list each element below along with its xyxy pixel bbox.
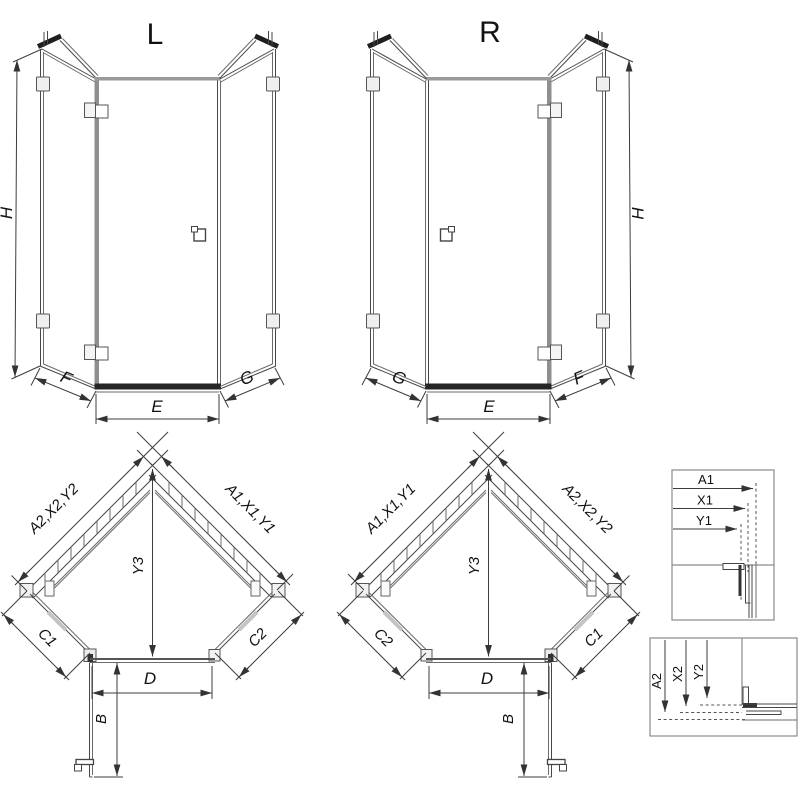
detail-label-y2: Y2 <box>691 664 706 680</box>
detail-label-x1: X1 <box>697 493 713 508</box>
dim-label-wall-left-R: A1,X1,Y1 <box>362 480 420 538</box>
dim-label-f-left: F <box>58 367 76 389</box>
dim-label-wall-left-L: A2,X2,Y2 <box>25 480 83 538</box>
dim-label-e-right: E <box>483 397 495 416</box>
dim-label-y3-R: Y3 <box>466 556 483 575</box>
dim-label-f-right: F <box>570 367 588 389</box>
elevation-view-right: R H G E F <box>362 16 647 424</box>
dim-label-height-right: H <box>628 207 647 220</box>
dim-label-c1-R: C1 <box>581 625 607 651</box>
dim-label-d-L: D <box>144 669 156 688</box>
detail-label-x2: X2 <box>670 666 685 682</box>
dim-label-e-left: E <box>151 397 163 416</box>
elevation-view-left: L H F E G <box>0 18 284 424</box>
view-title-right: R <box>479 16 501 49</box>
dim-label-wall-right-L: A1,X1,Y1 <box>221 480 279 538</box>
drawing-canvas: L H F E G R H G E F A2,X2,Y2 A1,X1,Y1 Y3… <box>0 0 800 800</box>
dim-label-c1-L: C1 <box>34 625 60 651</box>
dim-label-g-right: G <box>389 367 409 390</box>
shower-enclosure-diagram: L H F E G R H G E F A2,X2,Y2 A1,X1,Y1 Y3… <box>0 0 800 800</box>
dim-label-c2-R: C2 <box>370 625 396 651</box>
detail-view-bottom: A2 X2 Y2 <box>649 638 797 736</box>
plan-view-right: A1,X1,Y1 A2,X2,Y2 Y3 C2 C1 D B <box>337 432 640 777</box>
detail-label-a2: A2 <box>649 673 664 689</box>
dim-label-wall-right-R: A2,X2,Y2 <box>558 480 616 538</box>
view-title-left: L <box>147 18 164 51</box>
dim-label-y3-L: Y3 <box>130 556 147 575</box>
detail-view-top: A1 X1 Y1 <box>672 470 774 620</box>
dim-label-b-L: B <box>93 714 110 724</box>
detail-label-a1: A1 <box>698 472 714 487</box>
dim-label-b-R: B <box>500 714 517 724</box>
dim-label-d-R: D <box>481 669 493 688</box>
plan-view-left: A2,X2,Y2 A1,X1,Y1 Y3 C1 C2 D B <box>1 432 304 777</box>
dim-label-height-left: H <box>0 206 16 219</box>
dim-label-g-left: G <box>237 367 257 390</box>
detail-label-y1: Y1 <box>696 513 712 528</box>
dim-label-c2-L: C2 <box>245 625 271 651</box>
